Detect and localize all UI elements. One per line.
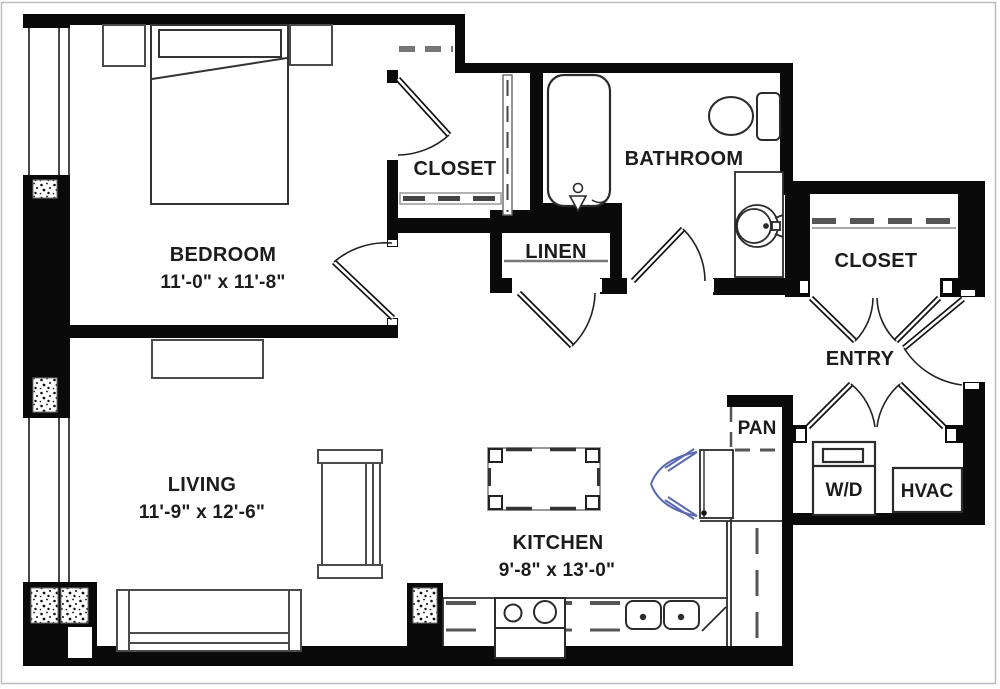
washer-dryer-label: W/D [826,480,863,501]
linen-label: LINEN [525,241,587,263]
column [413,588,437,623]
floor-plan-drawing: BEDROOM 11'-0" x 11'-8" CLOSET BATHROOM … [0,0,1000,689]
bedroom-window [23,28,70,175]
living-dims: 11'-9" x 12'-6" [139,502,265,523]
entry-door [904,299,963,385]
kitchen-dims: 9'-8" x 13'-0" [499,560,615,581]
wall [782,395,793,658]
column [33,378,57,412]
wall [963,382,985,525]
floor-plan: BEDROOM 11'-0" x 11'-8" CLOSET BATHROOM … [0,0,1000,689]
bedroom-dims: 11'-0" x 11'-8" [160,272,285,293]
nightstand [103,25,145,66]
bathroom-door [633,229,705,281]
bedroom-door [334,243,393,318]
wall [600,278,627,294]
washer-dryer-unit [813,442,875,515]
bedroom-closet-door [398,79,449,155]
wall [23,14,465,25]
wall [958,181,985,297]
bedroom-label: BEDROOM [170,244,277,266]
refrigerator-door-swing [651,449,697,519]
hvac-label: HVAC [901,481,954,502]
armchair [318,450,382,578]
column [33,180,57,198]
living-label: LIVING [168,474,236,496]
wall [530,63,543,210]
toilet [709,93,780,140]
kitchen-label: KITCHEN [513,532,604,554]
linen-door [519,293,595,346]
burner [505,605,522,622]
counter-corner [702,607,726,631]
counters [443,521,782,646]
pantry-label: PAN [738,418,777,439]
wall [387,160,398,247]
refrigerator [651,449,733,519]
kitchen-sink [626,601,699,629]
wall [785,181,970,194]
living-window [23,418,70,582]
bedroom-closet-label: CLOSET [414,158,497,180]
vanity-sink [735,172,783,277]
dresser [152,340,263,378]
island-table [488,448,600,510]
sofa [117,590,301,651]
washer-closet-doors [808,384,944,427]
bathroom-label: BATHROOM [625,148,744,170]
column [61,588,88,623]
nightstand [290,25,332,65]
bed-headboard [159,30,281,57]
entry-closet-label: CLOSET [835,250,918,272]
wall [490,278,512,293]
entry-label: ENTRY [826,348,895,370]
living-furniture [117,450,382,651]
kitchen-fixtures [443,448,782,658]
wall [455,63,790,73]
column [31,588,58,623]
wall [727,395,793,407]
utility-fixtures [813,442,962,515]
wall-bedroom-living-divider [70,325,397,338]
burner [534,601,556,623]
range [495,598,565,658]
